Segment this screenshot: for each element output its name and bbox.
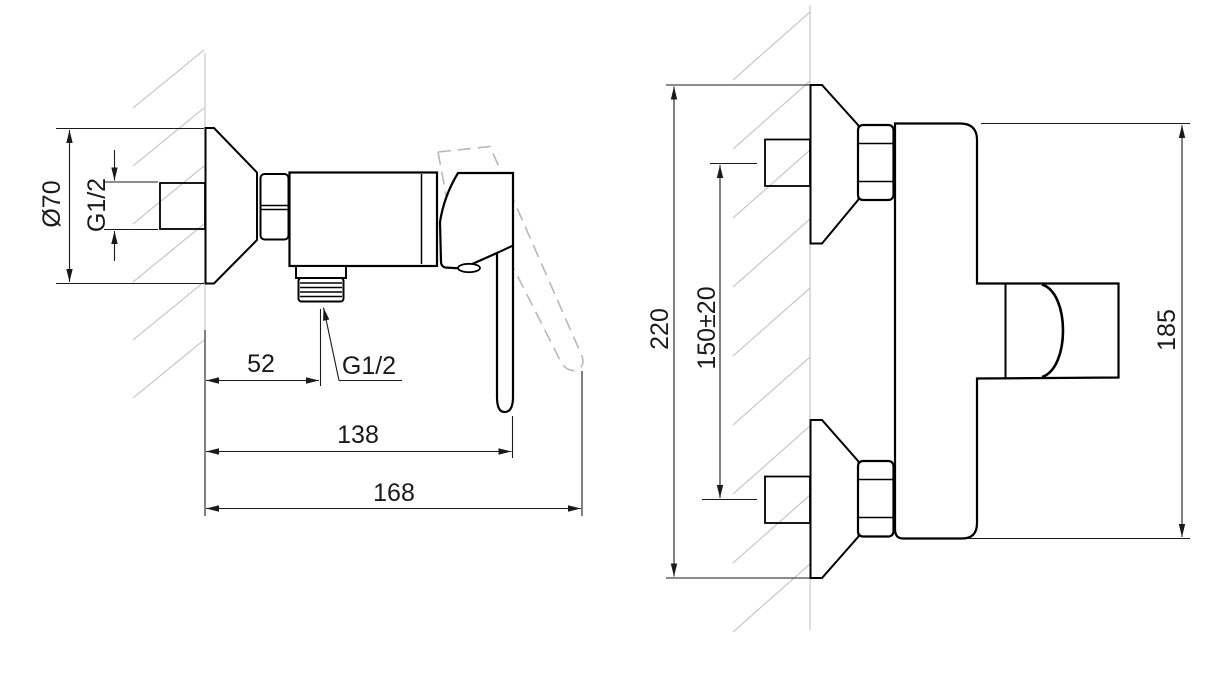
inlet-pipe-bottom xyxy=(765,477,810,524)
dim-label-mixer-height: 185 xyxy=(1153,309,1181,351)
lever-handle-side xyxy=(440,173,513,412)
dim-label-overall-height: 220 xyxy=(646,308,674,350)
escutcheon-top xyxy=(811,85,859,244)
technical-drawing-canvas: Ø70 G1/2 52 G1/2 138 168 xyxy=(0,0,1225,685)
escutcheon-bottom xyxy=(811,420,859,578)
leader-outlet-thread xyxy=(324,308,340,381)
dim-label-reach-open: 168 xyxy=(373,479,415,507)
hex-nut-side xyxy=(261,174,289,240)
dim-label-reach-closed: 138 xyxy=(337,421,379,449)
hex-nut-top xyxy=(858,125,894,200)
lever-pivot-detail xyxy=(458,264,480,272)
inlet-pipe-side xyxy=(160,183,205,229)
outlet-thread-side xyxy=(299,278,344,302)
escutcheon-side xyxy=(206,128,258,284)
dim-label-inlet-thread: G1/2 xyxy=(83,178,111,232)
front-view: 220 150±20 185 xyxy=(646,5,1190,632)
inlet-pipe-top xyxy=(765,140,810,187)
front-faucet xyxy=(765,85,1119,578)
front-wall-hatching xyxy=(733,5,810,632)
mixer-dimension-drawing: Ø70 G1/2 52 G1/2 138 168 xyxy=(0,0,1225,685)
dim-label-outlet-offset: 52 xyxy=(247,350,275,378)
outlet-collar xyxy=(296,266,346,278)
mixer-body-side xyxy=(290,173,438,267)
dim-label-outlet-thread: G1/2 xyxy=(342,352,396,380)
side-view: Ø70 G1/2 52 G1/2 138 168 xyxy=(38,50,583,516)
side-wall-hatching xyxy=(133,50,205,398)
mixer-body-front xyxy=(895,124,1119,539)
hex-nut-bottom xyxy=(858,461,894,537)
dim-label-diameter: Ø70 xyxy=(38,180,66,227)
dim-label-inlet-centres: 150±20 xyxy=(693,286,721,369)
